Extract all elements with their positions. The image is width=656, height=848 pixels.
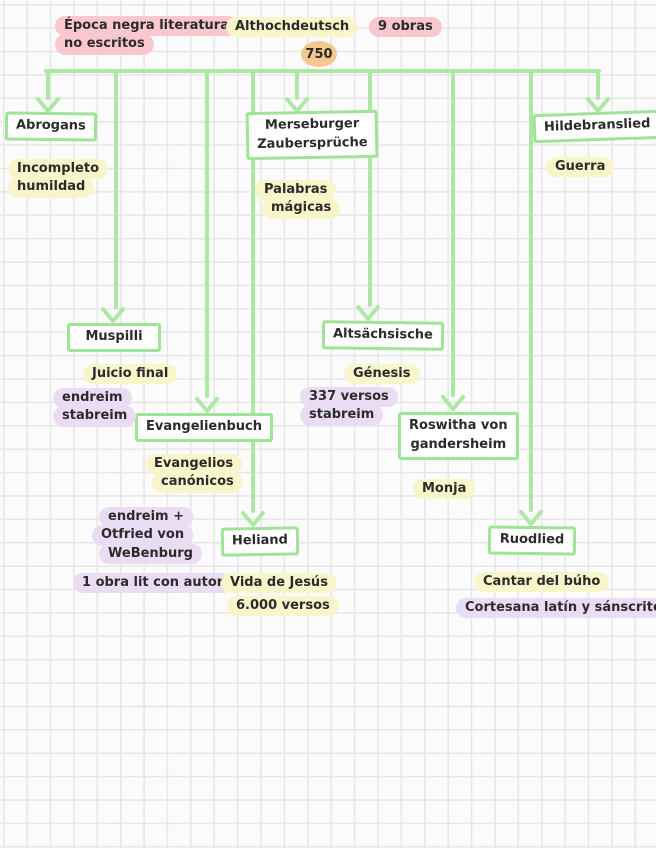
note-altsachsische-form: 337 versos stabreim (300, 389, 398, 426)
era-note: Época negra literatura no escritos (55, 18, 238, 55)
note-line: stabreim (53, 406, 136, 426)
node-heliand: Heliand (221, 526, 299, 556)
node-merseburger: Merseburger Zaubersprüche (246, 110, 379, 160)
node-title: Zaubersprüche (257, 134, 368, 155)
node-title: Heliand (232, 532, 288, 552)
arrowhead-muspilli (100, 307, 126, 324)
note-muspilli-form: endreim stabreim (53, 390, 136, 427)
note-ruodlied-theme: Cantar del búho (474, 574, 609, 592)
note-line: Juicio final (83, 364, 177, 384)
note-hildebranslied-detail: Guerra (546, 159, 614, 177)
connector-branch-muspilli (114, 69, 118, 309)
note-evangelienbuch-theme: Evangelios canónicos (145, 456, 243, 493)
note-ruodlied-detail: Cortesana latín y sánscrito (456, 600, 656, 618)
note-line: Evangelios (145, 454, 242, 474)
connector-branch-roswitha (451, 69, 455, 397)
root-year-badge: 750 (301, 41, 337, 67)
works-count-badge: 9 obras (369, 19, 442, 37)
connector-branch-hildebranslied (596, 69, 600, 100)
note-line: mágicas (262, 198, 340, 218)
note-line: 337 versos (300, 387, 398, 407)
node-title: Altsächsische (333, 325, 433, 345)
note-heliand-length: 6.000 versos (227, 598, 339, 616)
node-title: Abrogans (16, 117, 86, 137)
node-title: Merseburger (257, 115, 368, 136)
node-title: Evangelienbuch (146, 418, 262, 437)
connector-trunk (44, 69, 601, 73)
note-line: endreim (53, 388, 132, 408)
connector-branch-altsachsische (368, 69, 372, 307)
node-altsachsische: Altsächsische (322, 320, 444, 350)
note-evangelienbuch-author: endreim + Otfried von WeBenburg (92, 509, 202, 564)
note-line: humildad (8, 177, 94, 197)
connector-branch-merseburger (295, 69, 299, 100)
node-ruodlied: Ruodlied (488, 525, 576, 555)
note-line: canónicos (152, 472, 243, 492)
node-muspilli: Muspilli (67, 323, 161, 352)
note-line: Otfried von (92, 525, 193, 545)
connector-branch-abrogans (46, 69, 50, 100)
note-muspilli-theme: Juicio final (83, 366, 177, 384)
root-label-text: Althochdeutsch (226, 17, 358, 37)
note-line: WeBenburg (99, 544, 202, 564)
note-abrogans-detail: Incompleto humildad (8, 161, 108, 198)
note-line: Monja (413, 479, 475, 499)
root-year-text: 750 (305, 47, 332, 62)
arrowhead-altsachsische (355, 305, 381, 322)
node-title: gandersheim (409, 436, 508, 455)
node-title: Ruodlied (499, 531, 565, 551)
note-heliand-theme: Vida de Jesús (221, 575, 337, 593)
arrowhead-roswitha (440, 395, 466, 412)
node-evangelienbuch: Evangelienbuch (135, 413, 273, 442)
node-roswitha: Roswitha von gandersheim (398, 412, 519, 460)
concept-map-canvas: Época negra literatura no escritos Altho… (0, 0, 656, 848)
node-abrogans: Abrogans (5, 111, 97, 141)
arrowhead-heliand (240, 511, 266, 528)
note-line: Cantar del búho (474, 572, 609, 592)
node-hildebranslied: Hildebranslied (533, 110, 656, 143)
note-evangelienbuch-fact: 1 obra lit con autor (73, 575, 232, 593)
note-roswitha-detail: Monja (413, 481, 475, 499)
node-title: Muspilli (78, 328, 150, 347)
works-count-text: 9 obras (369, 17, 442, 37)
note-line: Palabras (255, 180, 336, 200)
note-line: Vida de Jesús (221, 573, 337, 593)
note-line: Guerra (546, 157, 614, 177)
node-title: Hildebranslied (544, 115, 651, 138)
note-altsachsische-theme: Génesis (344, 366, 420, 384)
node-title: Roswitha von (409, 417, 508, 436)
note-line: 1 obra lit con autor (73, 573, 232, 593)
note-line: endreim + (99, 507, 193, 527)
note-line: Incompleto (8, 159, 108, 179)
era-note-line: no escritos (55, 34, 154, 54)
connector-branch-evangelienbuch (205, 69, 209, 398)
note-line: 6.000 versos (227, 596, 339, 616)
note-line: Génesis (344, 364, 420, 384)
note-merseburger-detail: Palabras mágicas (255, 182, 340, 219)
root-label: Althochdeutsch (226, 19, 358, 37)
note-line: stabreim (300, 405, 383, 425)
arrowhead-evangelienbuch (194, 397, 220, 414)
arrowhead-ruodlied (518, 510, 544, 527)
note-line: Cortesana latín y sánscrito (456, 598, 656, 618)
era-note-line: Época negra literatura (55, 16, 238, 36)
